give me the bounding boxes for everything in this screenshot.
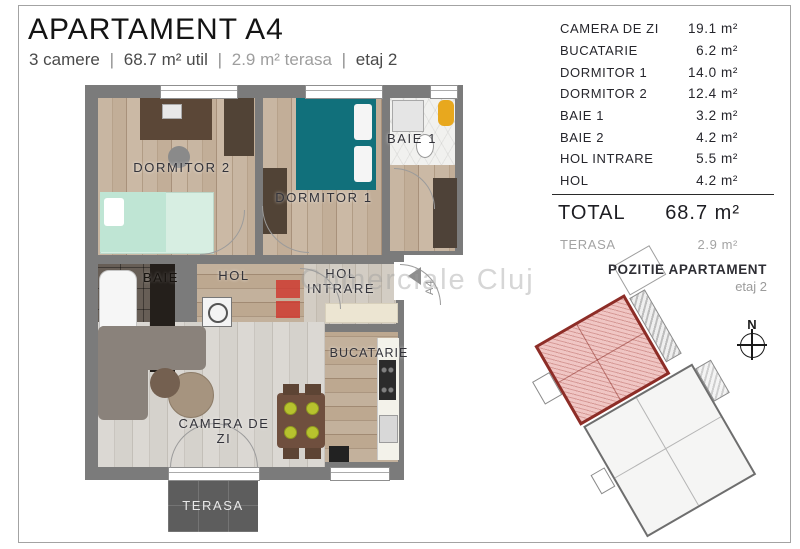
compass-icon [740, 333, 765, 358]
table-row: HOL 4.2 m² [552, 170, 774, 192]
table-row: HOL INTRARE 5.5 m² [552, 148, 774, 170]
window-dormitor2 [160, 85, 238, 99]
label-camera-de-zi: CAMERA DE ZI [174, 416, 274, 446]
row-label: HOL INTRARE [560, 151, 654, 166]
subtitle-divider: | [342, 50, 346, 69]
plate [306, 426, 319, 439]
table-row: BAIE 1 3.2 m² [552, 105, 774, 127]
sofa-side [98, 326, 148, 420]
hall-wardrobe [433, 178, 457, 248]
position-section: POZITIE APARTAMENT etaj 2 [547, 262, 767, 294]
washing-machine-door [208, 303, 228, 323]
row-area: 3.2 m² [696, 108, 738, 123]
page-title: APARTAMENT A4 [28, 13, 284, 47]
row-area: 5.5 m² [696, 151, 738, 166]
row-area: 4.2 m² [696, 130, 738, 145]
kitchen-sink [379, 415, 398, 443]
plate [306, 402, 319, 415]
row-area: 19.1 m² [688, 21, 738, 36]
towel [438, 100, 454, 126]
chair [305, 448, 321, 459]
bed-pillow-1 [354, 104, 372, 140]
subtitle-divider: | [218, 50, 222, 69]
row-label: BAIE 2 [560, 130, 604, 145]
row-area: 12.4 m² [688, 86, 738, 101]
label-bucatarie: BUCATARIE [327, 346, 411, 361]
table-terasa-row: TERASA 2.9 m² [552, 235, 774, 255]
shower [392, 100, 424, 132]
subtitle-terasa: 2.9 m² terasa [232, 50, 332, 69]
plate [284, 402, 297, 415]
table-total-row: TOTAL 68.7 m² [552, 194, 774, 229]
table-row: BUCATARIE 6.2 m² [552, 40, 774, 62]
label-dormitor2: DORMITOR 2 [122, 160, 242, 175]
watermark-logo-icon [276, 301, 300, 318]
terasa-row-label: TERASA [560, 237, 616, 252]
window-baie1 [430, 85, 458, 99]
bed-pillow-2 [354, 146, 372, 182]
row-label: BUCATARIE [560, 43, 638, 58]
row-area: 14.0 m² [688, 65, 738, 80]
row-label: CAMERA DE ZI [560, 21, 659, 36]
terasa-label: TERASA [168, 480, 258, 532]
subtitle-divider: | [110, 50, 114, 69]
position-title: POZITIE APARTAMENT [547, 262, 767, 277]
floorplan-page: APARTAMENT A4 3 camere | 68.7 m² util | … [0, 0, 800, 549]
row-label: DORMITOR 1 [560, 65, 647, 80]
terasa-door [168, 467, 260, 481]
chair [283, 384, 299, 395]
row-label: DORMITOR 2 [560, 86, 647, 101]
table-row: DORMITOR 1 14.0 m² [552, 61, 774, 83]
watermark-text: Comerciale Cluj [300, 264, 535, 297]
side-table [150, 368, 180, 398]
stove [379, 360, 396, 400]
row-area: 6.2 m² [696, 43, 738, 58]
small-appliance [329, 446, 349, 462]
page-subtitle: 3 camere | 68.7 m² util | 2.9 m² terasa … [29, 50, 397, 70]
dining-table [277, 393, 325, 448]
window-living [330, 467, 390, 481]
compass-icon [737, 344, 767, 346]
chair [283, 448, 299, 459]
label-baie1: BAIE 1 [377, 131, 447, 146]
subtitle-util: 68.7 m² util [124, 50, 208, 69]
row-label: HOL [560, 173, 589, 188]
areas-table: CAMERA DE ZI 19.1 m² BUCATARIE 6.2 m² DO… [552, 18, 774, 255]
row-label: BAIE 1 [560, 108, 604, 123]
row-area: 4.2 m² [696, 173, 738, 188]
watermark-logo-icon [276, 280, 300, 298]
subtitle-rooms: 3 camere [29, 50, 100, 69]
total-label: TOTAL [558, 202, 626, 225]
table-row: BAIE 2 4.2 m² [552, 126, 774, 148]
wardrobe-dormitor2 [224, 98, 254, 156]
building-position-map [545, 295, 780, 543]
terasa-area: TERASA [168, 480, 258, 532]
table-row: DORMITOR 2 12.4 m² [552, 83, 774, 105]
table-row: CAMERA DE ZI 19.1 m² [552, 18, 774, 40]
subtitle-floor: etaj 2 [356, 50, 398, 69]
position-subtitle: etaj 2 [547, 279, 767, 294]
label-dormitor1: DORMITOR 1 [264, 190, 384, 205]
laptop [162, 104, 182, 119]
label-hol: HOL [204, 268, 264, 283]
chair [305, 384, 321, 395]
kid-bed-pillow [104, 198, 124, 226]
label-baie: BAIE [126, 270, 196, 285]
window-dormitor1 [305, 85, 383, 99]
plate [284, 426, 297, 439]
terasa-row-area: 2.9 m² [698, 237, 738, 252]
total-area: 68.7 m² [665, 202, 740, 225]
